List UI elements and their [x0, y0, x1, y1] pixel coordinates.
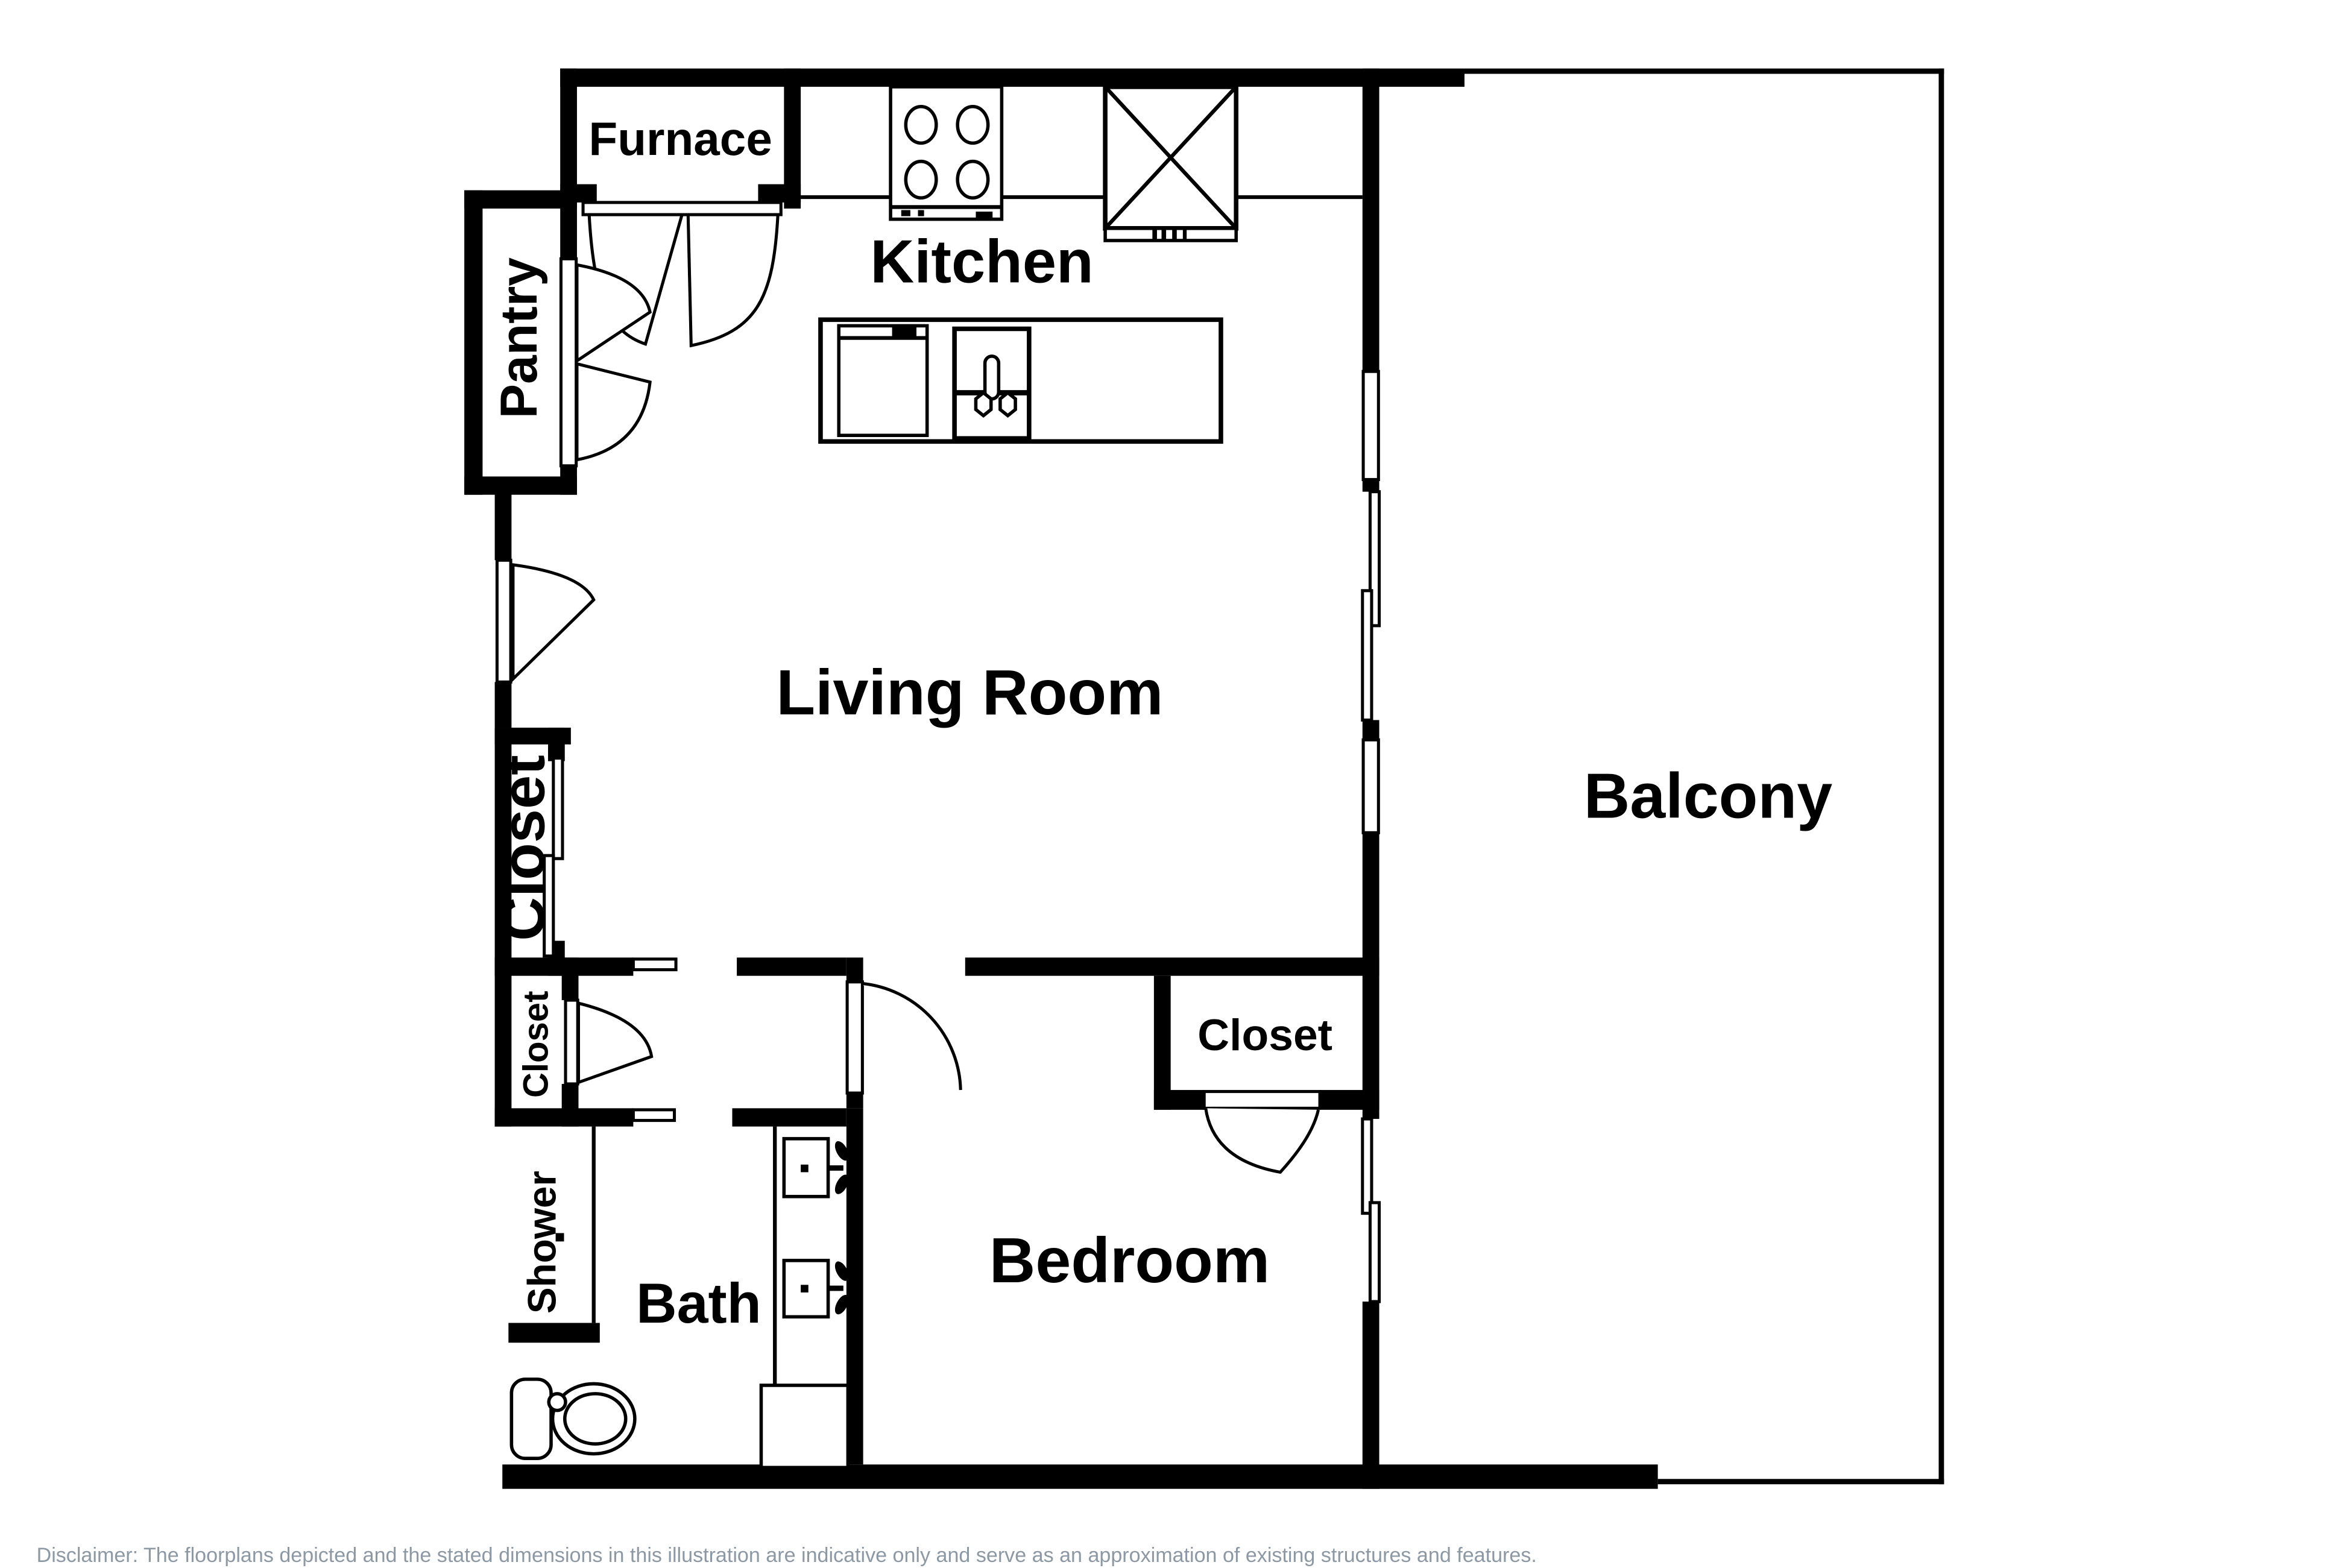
living-room-label: Living Room — [776, 657, 1163, 728]
door-swing-icon — [862, 983, 960, 1090]
furnace-right-wall — [784, 69, 801, 209]
pantry-label: Pantry — [490, 257, 548, 418]
faucet-icon — [828, 1165, 843, 1171]
vanity-sink-icon — [801, 1165, 809, 1173]
closet-large-label: Closet — [490, 755, 558, 941]
shower-label: Shower — [520, 1171, 564, 1314]
toilet-icon — [565, 1394, 626, 1444]
sliding-door-icon — [1363, 591, 1372, 720]
bedroom-closet-label: Closet — [1197, 1010, 1332, 1060]
pantry-bottom-wall — [464, 476, 577, 494]
balcony-top-edge — [1464, 69, 1944, 74]
stove-control — [976, 212, 992, 219]
fridge-vent — [1172, 228, 1177, 241]
right-wall-seg-1 — [1363, 69, 1379, 372]
living-bottom-wall-mid — [737, 957, 847, 975]
bedroom-closet-bottom-wall-left — [1154, 1090, 1204, 1110]
stove-burner — [906, 107, 936, 143]
stove-burner — [957, 107, 988, 143]
window-icon — [1363, 371, 1378, 479]
right-wall-seg-5 — [1363, 1302, 1379, 1489]
stove-control — [918, 210, 924, 216]
right-wall-seg-3 — [1363, 720, 1379, 740]
furnace-label: Furnace — [588, 112, 772, 165]
fridge-vent — [1183, 228, 1187, 241]
toilet-icon — [511, 1379, 551, 1458]
window-icon — [1363, 1119, 1372, 1214]
closet-small-right-wall-lower — [562, 1084, 579, 1127]
pantry-left-wall — [464, 190, 482, 495]
faucet-icon — [1000, 393, 1015, 416]
top-wall — [560, 69, 1464, 87]
bifold-door-icon — [583, 203, 781, 215]
stove-burner — [957, 162, 988, 198]
fridge-vent — [1162, 228, 1167, 241]
right-wall-seg-4 — [1363, 833, 1379, 1119]
furnace-left-wall — [560, 69, 577, 203]
door-swing-icon — [1206, 1108, 1319, 1172]
bifold-door-icon — [561, 259, 576, 465]
faucet-icon — [985, 356, 999, 399]
closet-small-right-wall-upper — [562, 957, 579, 1000]
door-swing-icon — [566, 1000, 578, 1084]
faucet-icon — [828, 1286, 843, 1291]
bath-top-wall-right — [732, 1108, 846, 1126]
right-wall-seg-2 — [1363, 479, 1379, 491]
balcony-right-edge — [1938, 69, 1944, 1484]
dishwasher-handle — [892, 324, 916, 336]
bath-label: Bath — [636, 1271, 761, 1335]
pantry-right-wall-upper — [560, 190, 577, 262]
fridge-vent — [1152, 228, 1157, 241]
shower-bottom-wall — [508, 1323, 599, 1343]
door-swing-icon — [847, 982, 862, 1093]
left-wall-mid — [495, 682, 512, 728]
door-swing-icon — [578, 1003, 651, 1082]
bedroom-wall-post-lower — [847, 1093, 863, 1108]
bedroom-wall-post-upper — [847, 957, 863, 981]
bifold-door-icon — [577, 364, 650, 460]
left-wall-lower — [495, 957, 512, 1126]
faucet-icon — [976, 393, 991, 416]
vanity-sink-icon — [801, 1285, 809, 1292]
bifold-door-icon — [688, 215, 778, 345]
stove-control — [901, 210, 910, 216]
window-icon — [1370, 1203, 1379, 1302]
floorplan-page: Furnace Kitchen Pantry Living Room Balco… — [0, 0, 2352, 1568]
closet-small-label: Closet — [516, 991, 555, 1098]
door-swing-icon — [1204, 1092, 1320, 1109]
bottom-wall — [502, 1464, 1657, 1488]
door-swing-icon — [513, 565, 594, 679]
left-wall-upper — [495, 492, 512, 561]
door-leaf-icon — [633, 1110, 674, 1121]
window-icon — [1363, 740, 1378, 833]
stove-burner — [906, 162, 936, 198]
living-bottom-wall-right — [965, 957, 1379, 975]
kitchen-label: Kitchen — [870, 228, 1093, 295]
fridge-vent — [1105, 228, 1236, 241]
door-swing-icon — [497, 560, 511, 682]
bedroom-label: Bedroom — [989, 1225, 1270, 1296]
disclaimer-text: Disclaimer: The floorplans depicted and … — [37, 1544, 1537, 1567]
balcony-bottom-edge — [1658, 1479, 1944, 1484]
stove-icon — [891, 87, 1001, 219]
dishwasher-icon — [839, 326, 927, 435]
door-leaf-icon — [633, 959, 676, 970]
bedroom-closet-left-wall — [1154, 976, 1171, 1110]
balcony-label: Balcony — [1584, 761, 1833, 832]
toilet-flush — [549, 1394, 566, 1411]
floorplan-drawing: Furnace Kitchen Pantry Living Room Balco… — [0, 0, 2352, 1568]
vanity-cabinet — [761, 1385, 848, 1467]
